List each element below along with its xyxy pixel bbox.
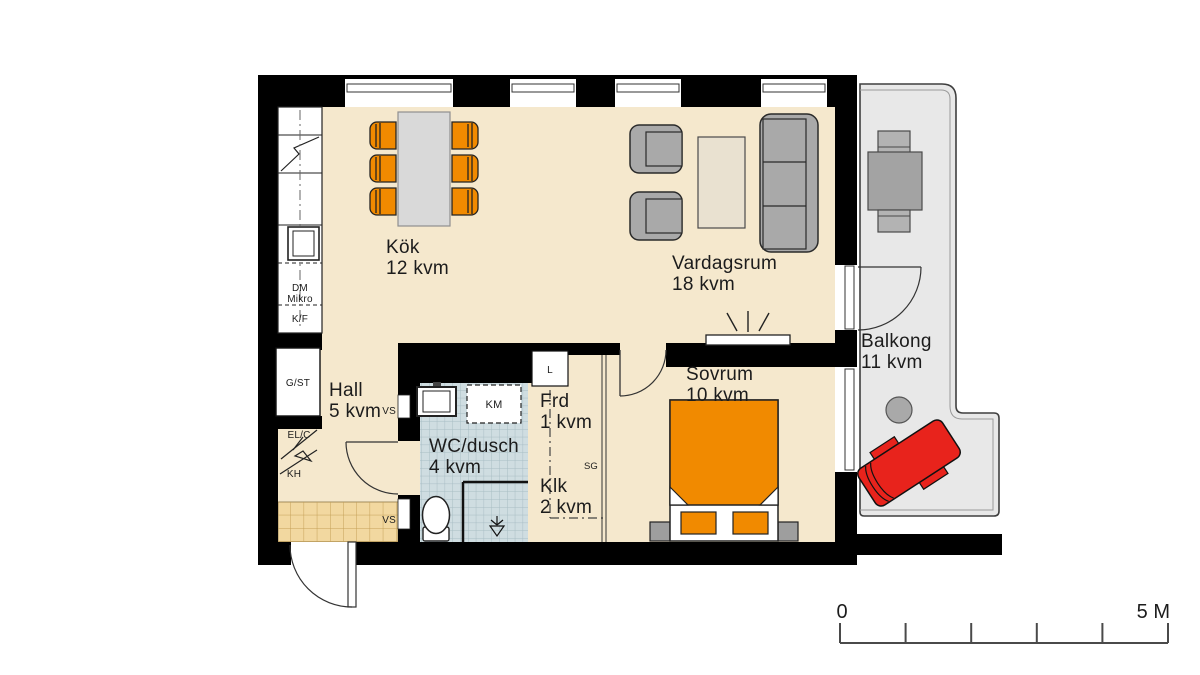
bathroom-area: 4 kvm <box>429 457 481 478</box>
nightstand <box>650 522 670 541</box>
pillow <box>681 512 716 534</box>
balcony-chair <box>878 210 910 232</box>
wall-left <box>258 75 278 565</box>
nightstand <box>778 522 798 541</box>
bed-blanket <box>670 400 778 505</box>
hall-area: 5 kvm <box>329 401 381 422</box>
living-room-area: 18 kvm <box>672 274 735 295</box>
bathroom-door-opening <box>398 441 420 495</box>
bedroom-door-opening <box>620 343 666 367</box>
wall-balcony-bottom <box>857 534 1002 555</box>
bathroom-label: WC/dusch <box>429 436 519 457</box>
wall-gst-band <box>276 416 322 429</box>
window <box>345 79 453 107</box>
dishwasher-label: DM <box>292 283 308 294</box>
bedroom-window <box>835 367 857 472</box>
floor-plan-page: DM Mikro K/F G/ST EL/C KH KM <box>0 0 1200 675</box>
wardrobe-gst-label: G/ST <box>286 378 310 389</box>
entry-tile-floor <box>278 502 398 542</box>
sofa <box>760 114 818 252</box>
shaft-lower-niche <box>398 499 410 529</box>
bedroom-label: Sovrum <box>686 364 753 385</box>
scale-end-label: 5 M <box>1137 601 1170 623</box>
microwave-label: Mikro <box>287 294 313 305</box>
balcony-label: Balkong <box>861 331 932 352</box>
linen-cabinet-label: L <box>547 365 553 376</box>
entry-door-opening <box>291 542 356 565</box>
sink <box>417 382 456 416</box>
shaft-upper-label: VS <box>382 406 396 417</box>
kitchen-label: Kök <box>386 237 420 258</box>
balcony-table <box>868 152 922 210</box>
bedroom-area: 10 kvm <box>686 385 749 406</box>
pillow <box>733 512 768 534</box>
window <box>615 79 681 107</box>
wall-bathroom-top <box>398 343 533 383</box>
storage-label: Frd <box>540 391 569 412</box>
hob-sink-square <box>288 227 319 260</box>
balcony-door-opening <box>835 265 857 330</box>
window <box>510 79 576 107</box>
dining-set <box>370 112 478 226</box>
walk-in-closet-area: 2 kvm <box>540 497 592 518</box>
coat-rack-label: KH <box>287 469 301 480</box>
washing-machine: KM <box>467 385 521 423</box>
floor-plan-svg: DM Mikro K/F G/ST EL/C KH KM <box>0 0 1200 675</box>
sliding-doors-label: SG <box>584 461 598 472</box>
balcony-area: 11 kvm <box>861 352 923 373</box>
bed <box>650 400 798 541</box>
shaft-upper-niche <box>398 395 410 418</box>
shaft-lower-label: VS <box>382 515 396 526</box>
hall-label: Hall <box>329 380 363 401</box>
toilet <box>423 497 450 542</box>
balcony-side-table <box>886 397 912 423</box>
coffee-table <box>698 137 745 228</box>
walk-in-closet-label: Klk <box>540 476 567 497</box>
kitchen-area: 12 kvm <box>386 258 449 279</box>
scale-start-label: 0 <box>836 601 847 623</box>
washing-machine-label: KM <box>486 399 503 411</box>
fridge-freezer-label: K/F <box>292 314 308 325</box>
armchair <box>630 192 682 240</box>
window <box>761 79 827 107</box>
living-room-label: Vardagsrum <box>672 253 777 274</box>
armchair <box>630 125 682 173</box>
electrical-cabinet-label: EL/C <box>287 430 310 441</box>
kitchen-counter: DM Mikro K/F <box>278 107 322 333</box>
storage-area: 1 kvm <box>540 412 592 433</box>
balcony-chair <box>878 131 910 153</box>
dining-table <box>398 112 450 226</box>
